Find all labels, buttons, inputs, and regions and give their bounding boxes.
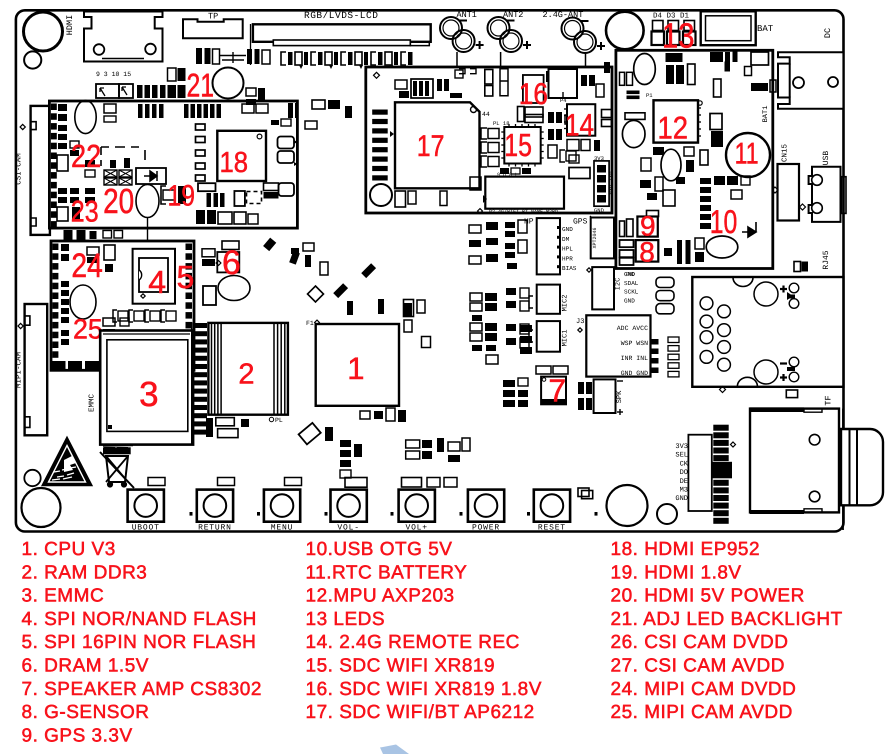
svg-text:26. CSI CAM DVDD: 26. CSI CAM DVDD bbox=[611, 632, 789, 653]
svg-text:19. HDMI 1.8V: 19. HDMI 1.8V bbox=[611, 562, 742, 583]
svg-text:HPR: HPR bbox=[562, 255, 573, 262]
svg-text:GND: GND bbox=[675, 495, 688, 503]
svg-text:GND: GND bbox=[594, 207, 605, 214]
svg-text:GND: GND bbox=[624, 271, 635, 278]
svg-text:POWER: POWER bbox=[472, 524, 500, 533]
svg-text:MIC1: MIC1 bbox=[562, 330, 570, 347]
svg-text:UBOOT: UBOOT bbox=[132, 524, 160, 533]
svg-text:25. MIPI CAM AVDD: 25. MIPI CAM AVDD bbox=[611, 702, 793, 723]
svg-text:SCKL: SCKL bbox=[624, 289, 639, 296]
svg-text:15: 15 bbox=[504, 127, 532, 163]
svg-text:CK: CK bbox=[680, 460, 689, 468]
svg-text:13 LEDS: 13 LEDS bbox=[306, 609, 386, 630]
svg-text:10: 10 bbox=[710, 203, 738, 240]
svg-text:15. SDC WIFI XR819: 15. SDC WIFI XR819 bbox=[306, 656, 496, 677]
svg-text:19: 19 bbox=[168, 180, 196, 213]
svg-text:1. CPU V3: 1. CPU V3 bbox=[22, 539, 116, 560]
svg-text:DC: DC bbox=[823, 28, 833, 38]
svg-text:16: 16 bbox=[519, 78, 548, 111]
svg-text:SEL: SEL bbox=[675, 452, 688, 460]
svg-text:18: 18 bbox=[220, 147, 249, 179]
svg-text:INR INL: INR INL bbox=[621, 355, 648, 362]
svg-text:PL 18: PL 18 bbox=[493, 120, 510, 127]
svg-text:2. RAM DDR3: 2. RAM DDR3 bbox=[22, 562, 148, 583]
svg-text:4. SPI NOR/NAND FLASH: 4. SPI NOR/NAND FLASH bbox=[22, 609, 257, 630]
svg-text:VOL+: VOL+ bbox=[405, 524, 427, 533]
svg-text:9. GPS 3.3V: 9. GPS 3.3V bbox=[22, 725, 133, 746]
svg-text:6: 6 bbox=[222, 244, 241, 282]
svg-text:1: 1 bbox=[347, 351, 364, 386]
svg-text:10.USB OTG 5V: 10.USB OTG 5V bbox=[306, 539, 453, 560]
svg-text:ANT1: ANT1 bbox=[457, 10, 477, 20]
svg-text:8. G-SENSOR: 8. G-SENSOR bbox=[22, 702, 150, 723]
svg-text:GPS: GPS bbox=[573, 218, 588, 227]
svg-text:GND: GND bbox=[624, 297, 635, 304]
svg-text:3V3: 3V3 bbox=[675, 443, 688, 451]
svg-text:BIAS: BIAS bbox=[562, 265, 577, 272]
svg-text:MIPI-CAM: MIPI-CAM bbox=[15, 352, 24, 389]
svg-text:MIC2: MIC2 bbox=[562, 295, 570, 312]
svg-text:8: 8 bbox=[639, 236, 655, 267]
svg-text:P4: P4 bbox=[560, 97, 567, 104]
svg-text:BAT: BAT bbox=[757, 24, 774, 34]
svg-text:20: 20 bbox=[103, 182, 134, 221]
svg-text:11.RTC BATTERY: 11.RTC BATTERY bbox=[306, 562, 468, 583]
svg-text:23: 23 bbox=[71, 196, 99, 229]
svg-text:CN15: CN15 bbox=[781, 144, 790, 163]
svg-text:20. HDMI 5V POWER: 20. HDMI 5V POWER bbox=[611, 586, 805, 607]
svg-text:24. MIPI CAM DVDD: 24. MIPI CAM DVDD bbox=[611, 679, 797, 700]
svg-text:RXD TXD: RXD TXD bbox=[608, 171, 615, 195]
svg-text:WSP WSN: WSP WSN bbox=[621, 340, 648, 347]
svg-text:USB: USB bbox=[822, 151, 831, 166]
svg-text:11: 11 bbox=[735, 138, 759, 171]
svg-text:5: 5 bbox=[177, 259, 195, 295]
svg-text:17: 17 bbox=[417, 130, 445, 163]
svg-text:GND GND: GND GND bbox=[621, 370, 648, 377]
svg-text:MENU: MENU bbox=[271, 524, 293, 533]
svg-text:RETURN: RETURN bbox=[198, 524, 232, 533]
svg-text:SDAL: SDAL bbox=[624, 280, 639, 287]
svg-text:PL: PL bbox=[275, 417, 283, 424]
svg-text:SPK: SPK bbox=[616, 390, 624, 403]
svg-text:16. SDC WIFI XR819 1.8V: 16. SDC WIFI XR819 1.8V bbox=[306, 679, 542, 700]
svg-text:6. DRAM 1.5V: 6. DRAM 1.5V bbox=[22, 656, 149, 677]
svg-text:3V3: 3V3 bbox=[594, 155, 604, 162]
svg-text:21. ADJ LED BACKLIGHT: 21. ADJ LED BACKLIGHT bbox=[611, 609, 843, 630]
svg-text:ADC AVCC: ADC AVCC bbox=[617, 325, 648, 332]
svg-text:RESET: RESET bbox=[538, 524, 566, 533]
svg-text:HDMI: HDMI bbox=[65, 15, 75, 35]
svg-text:17. SDC WIFI/BT AP6212: 17. SDC WIFI/BT AP6212 bbox=[306, 702, 535, 723]
svg-text:14. 2.4G REMOTE REC: 14. 2.4G REMOTE REC bbox=[306, 632, 520, 653]
svg-text:TP: TP bbox=[208, 12, 218, 22]
svg-text:P1: P1 bbox=[646, 92, 653, 99]
svg-text:14: 14 bbox=[565, 108, 594, 143]
svg-text:HP: HP bbox=[524, 218, 534, 227]
svg-text:VOL-: VOL- bbox=[337, 524, 359, 533]
svg-text:24: 24 bbox=[71, 247, 102, 285]
svg-text:CSI-CAM: CSI-CAM bbox=[15, 153, 24, 185]
svg-text:18. HDMI EP952: 18. HDMI EP952 bbox=[611, 539, 761, 560]
svg-text:12: 12 bbox=[658, 109, 689, 145]
svg-text:DE: DE bbox=[680, 478, 688, 486]
svg-text:4: 4 bbox=[148, 264, 166, 300]
svg-text:25: 25 bbox=[73, 313, 103, 344]
svg-text:12.MPU AXP203: 12.MPU AXP203 bbox=[306, 586, 455, 607]
svg-text:DM: DM bbox=[562, 236, 570, 243]
svg-text:DO: DO bbox=[680, 469, 688, 477]
svg-text:21: 21 bbox=[187, 67, 215, 104]
svg-text:9 3 10 15: 9 3 10 15 bbox=[96, 71, 131, 78]
svg-text:P2.4G/WIFI BT NAME-M2BD: P2.4G/WIFI BT NAME-M2BD bbox=[489, 209, 558, 215]
svg-text:44: 44 bbox=[482, 111, 490, 118]
svg-text:2: 2 bbox=[238, 359, 254, 391]
svg-text:5. SPI 16PIN NOR FLASH: 5. SPI 16PIN NOR FLASH bbox=[22, 632, 257, 653]
svg-text:3. EMMC: 3. EMMC bbox=[22, 586, 105, 607]
svg-text:22: 22 bbox=[71, 138, 101, 174]
svg-text:M3: M3 bbox=[680, 487, 688, 495]
svg-text:RJ45: RJ45 bbox=[822, 250, 831, 269]
svg-text:I2C: I2C bbox=[615, 278, 623, 291]
svg-text:HPL: HPL bbox=[562, 246, 573, 253]
svg-text:ANT2: ANT2 bbox=[503, 10, 523, 20]
svg-text:XPT2046: XPT2046 bbox=[592, 227, 598, 248]
svg-text:F1: F1 bbox=[306, 320, 314, 327]
svg-text:7: 7 bbox=[548, 372, 566, 408]
svg-text:GND: GND bbox=[562, 226, 573, 233]
svg-text:J3: J3 bbox=[576, 318, 584, 326]
svg-text:27. CSI CAM AVDD: 27. CSI CAM AVDD bbox=[611, 656, 785, 677]
svg-text:EMMC: EMMC bbox=[88, 394, 97, 413]
svg-text:TF: TF bbox=[824, 395, 834, 405]
svg-text:13: 13 bbox=[662, 17, 695, 56]
svg-text:BAT1: BAT1 bbox=[762, 106, 770, 123]
svg-text:7. SPEAKER AMP CS8302: 7. SPEAKER AMP CS8302 bbox=[22, 679, 262, 700]
svg-text:RGB/LVDS-LCD: RGB/LVDS-LCD bbox=[304, 10, 378, 21]
svg-text:3: 3 bbox=[139, 375, 158, 414]
